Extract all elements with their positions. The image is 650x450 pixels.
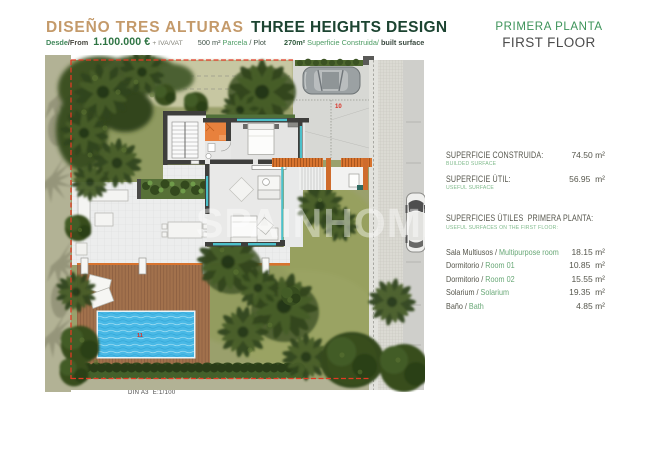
svg-text:SPAINHOME: SPAINHOME (196, 200, 425, 246)
svg-text:10: 10 (335, 104, 342, 110)
svg-text:11: 11 (137, 333, 143, 339)
